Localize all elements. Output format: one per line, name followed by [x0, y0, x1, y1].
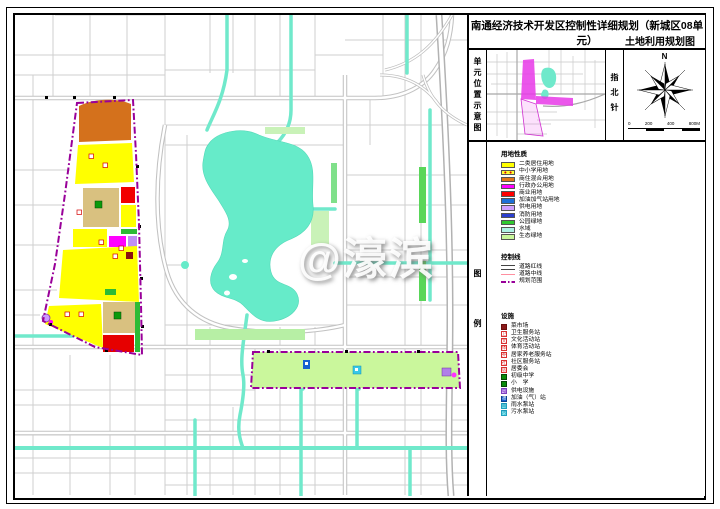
scale-bar: 0 200 400 800M — [628, 122, 700, 133]
facility-icon — [501, 374, 507, 380]
inset-unit-area — [521, 59, 536, 100]
facility-icon: 污 — [501, 410, 507, 416]
control-label: 规划范围 — [519, 279, 542, 285]
landuse-list: 二类居住用地 中小学用地 商住混合用地 行政办公用地 — [501, 162, 705, 241]
sheet-subtitle: 土地利用规划图 — [625, 33, 695, 48]
north-label: N — [624, 52, 705, 61]
landuse-swatch — [501, 198, 515, 204]
landuse-swatch — [501, 184, 515, 190]
facility-item: 电 供电设施 — [501, 388, 705, 395]
facility-label: 体育活动站 — [511, 345, 540, 351]
plan-sheet: @濠滨 南通经济技术开发区控制性详细规划（新城区08单元） 土地利用规划图 单元… — [0, 0, 720, 509]
control-line-symbol — [501, 272, 515, 278]
facility-icon: 油 — [501, 396, 507, 402]
facility-item: 社 社区服务站 — [501, 359, 705, 366]
parcel-admin-office — [109, 236, 126, 247]
landuse-swatch — [501, 220, 515, 226]
landuse-item: 中小学用地 — [501, 169, 705, 176]
compass-label: 指北针 — [606, 50, 624, 140]
scale-800: 800M — [689, 122, 700, 127]
facility-icon: 卫 — [501, 331, 507, 337]
facility-item: 污 污水泵站 — [501, 409, 705, 416]
facility-icon: 文 — [501, 338, 507, 344]
facility-icon: 居 — [501, 367, 507, 373]
landuse-item: 公园绿地 — [501, 219, 705, 226]
facility-icon: 雨 — [501, 403, 507, 409]
map-canvas — [15, 15, 467, 496]
legend-area: 图例 用地性质 二类居住用地 中小学用地 — [469, 142, 705, 496]
location-compass-row: 单元位置示意图 — [469, 50, 705, 142]
location-map-label: 单元位置示意图 — [469, 50, 487, 140]
power-facility-icon — [442, 368, 451, 376]
location-inset-map — [487, 50, 606, 140]
landuse-item: 生态绿地 — [501, 233, 705, 240]
scale-400: 400 — [667, 122, 675, 127]
facility-label: 卫生服务站 — [511, 331, 540, 337]
facility-icon: 养 — [501, 352, 507, 358]
landuse-swatch — [501, 162, 515, 168]
compass-rose-icon — [637, 61, 693, 119]
facility-label: 居家养老服务站 — [511, 353, 552, 359]
landuse-label: 生态绿地 — [519, 234, 542, 240]
facility-label: 居委会 — [511, 367, 528, 373]
facility-icon: 电 — [501, 388, 507, 394]
facility-label: 社区服务站 — [511, 360, 540, 366]
eco-green-strip — [251, 350, 460, 388]
facility-item: 初级中学 — [501, 373, 705, 380]
school-icon — [114, 312, 121, 319]
lake — [181, 131, 313, 322]
facilities-list: 菜市场 卫 卫生服务站 文 文化活动站 体 体育活动站 — [501, 323, 705, 416]
legend-label: 图例 — [469, 142, 487, 496]
landuse-label: 水域 — [519, 227, 531, 233]
parcel-mixed-commercial-residential — [79, 100, 131, 142]
facility-item: 体 体育活动站 — [501, 345, 705, 352]
facility-label: 雨水泵站 — [511, 403, 534, 409]
side-panel: 南通经济技术开发区控制性详细规划（新城区08单元） 土地利用规划图 单元位置示意… — [467, 15, 705, 496]
landuse-label: 商业用地 — [519, 191, 542, 197]
facility-icon: 社 — [501, 360, 507, 366]
parcel-commercial — [121, 187, 135, 203]
title-block: 南通经济技术开发区控制性详细规划（新城区08单元） 土地利用规划图 — [469, 15, 705, 50]
landuse-swatch — [501, 177, 515, 183]
landuse-label: 消防用地 — [519, 213, 542, 219]
market-icon — [126, 252, 133, 259]
planning-parcels — [42, 96, 144, 352]
facility-label: 加油（气）站 — [511, 396, 546, 402]
control-line-symbol — [501, 279, 515, 285]
landuse-swatch — [501, 213, 515, 219]
landuse-label: 商住混合用地 — [519, 177, 554, 183]
landuse-swatch — [501, 227, 515, 233]
facility-label: 供电设施 — [511, 389, 534, 395]
main-map: @濠滨 — [15, 15, 467, 496]
control-line-symbol — [501, 265, 515, 271]
compass-cell: N 0 — [624, 50, 705, 140]
landuse-swatch — [501, 205, 515, 211]
facility-icon — [501, 381, 507, 387]
landuse-label: 供电用地 — [519, 205, 542, 211]
control-label: 道路红线 — [519, 265, 542, 271]
facility-item: 小 学 — [501, 381, 705, 388]
school-icon — [95, 201, 102, 208]
landuse-item: 商住混合用地 — [501, 176, 705, 183]
parcel-power — [128, 236, 137, 247]
landuse-label: 行政办公用地 — [519, 184, 554, 190]
facility-item: 养 居家养老服务站 — [501, 352, 705, 359]
landuse-swatch — [501, 170, 515, 176]
scale-200: 200 — [645, 122, 653, 127]
facility-icon — [501, 324, 507, 330]
landuse-swatch — [501, 191, 515, 197]
control-item: 规划范围 — [501, 278, 705, 285]
landuse-header: 用地性质 — [501, 152, 705, 159]
scale-0: 0 — [628, 122, 631, 127]
control-label: 道路中线 — [519, 272, 542, 278]
landuse-swatch — [501, 234, 515, 240]
landuse-item: 消防用地 — [501, 212, 705, 219]
landuse-item: 供电用地 — [501, 205, 705, 212]
facility-label: 菜市场 — [511, 324, 528, 330]
landuse-label: 中小学用地 — [519, 169, 548, 175]
facilities-header: 设施 — [501, 314, 705, 321]
facility-label: 小 学 — [511, 381, 528, 387]
control-list: 道路红线 道路中线 规划范围 — [501, 264, 705, 286]
control-header: 控制线 — [501, 255, 705, 262]
facility-label: 污水泵站 — [511, 410, 534, 416]
facility-icon: 体 — [501, 345, 507, 351]
landuse-label: 公园绿地 — [519, 220, 542, 226]
